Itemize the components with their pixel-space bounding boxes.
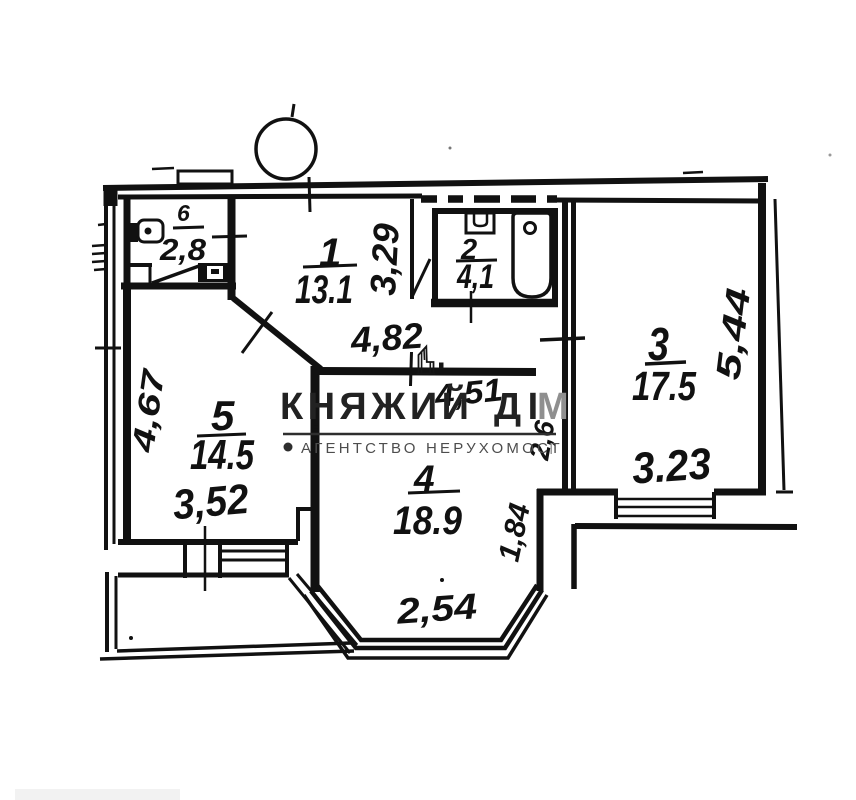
svg-text:І: І (549, 441, 553, 458)
svg-text:13.1: 13.1 (295, 268, 353, 312)
svg-text:18.9: 18.9 (393, 499, 463, 543)
svg-text:2,54: 2,54 (394, 585, 478, 632)
svg-text:17.5: 17.5 (632, 363, 697, 409)
svg-text:3,52: 3,52 (171, 475, 251, 528)
svg-text:6: 6 (177, 200, 190, 226)
svg-text:АГЕНТСТВО НЕРУХОМОСТ: АГЕНТСТВО НЕРУХОМОСТ (301, 440, 563, 457)
svg-text:14.5: 14.5 (190, 431, 254, 478)
svg-text:М: М (537, 386, 569, 428)
svg-text:3.23: 3.23 (630, 439, 712, 493)
svg-text:КНЯЖИЙ: КНЯЖИЙ (280, 383, 473, 428)
svg-text:4,1: 4,1 (456, 258, 494, 296)
svg-text:2,8: 2,8 (159, 232, 207, 267)
svg-text:3,29: 3,29 (362, 222, 407, 296)
